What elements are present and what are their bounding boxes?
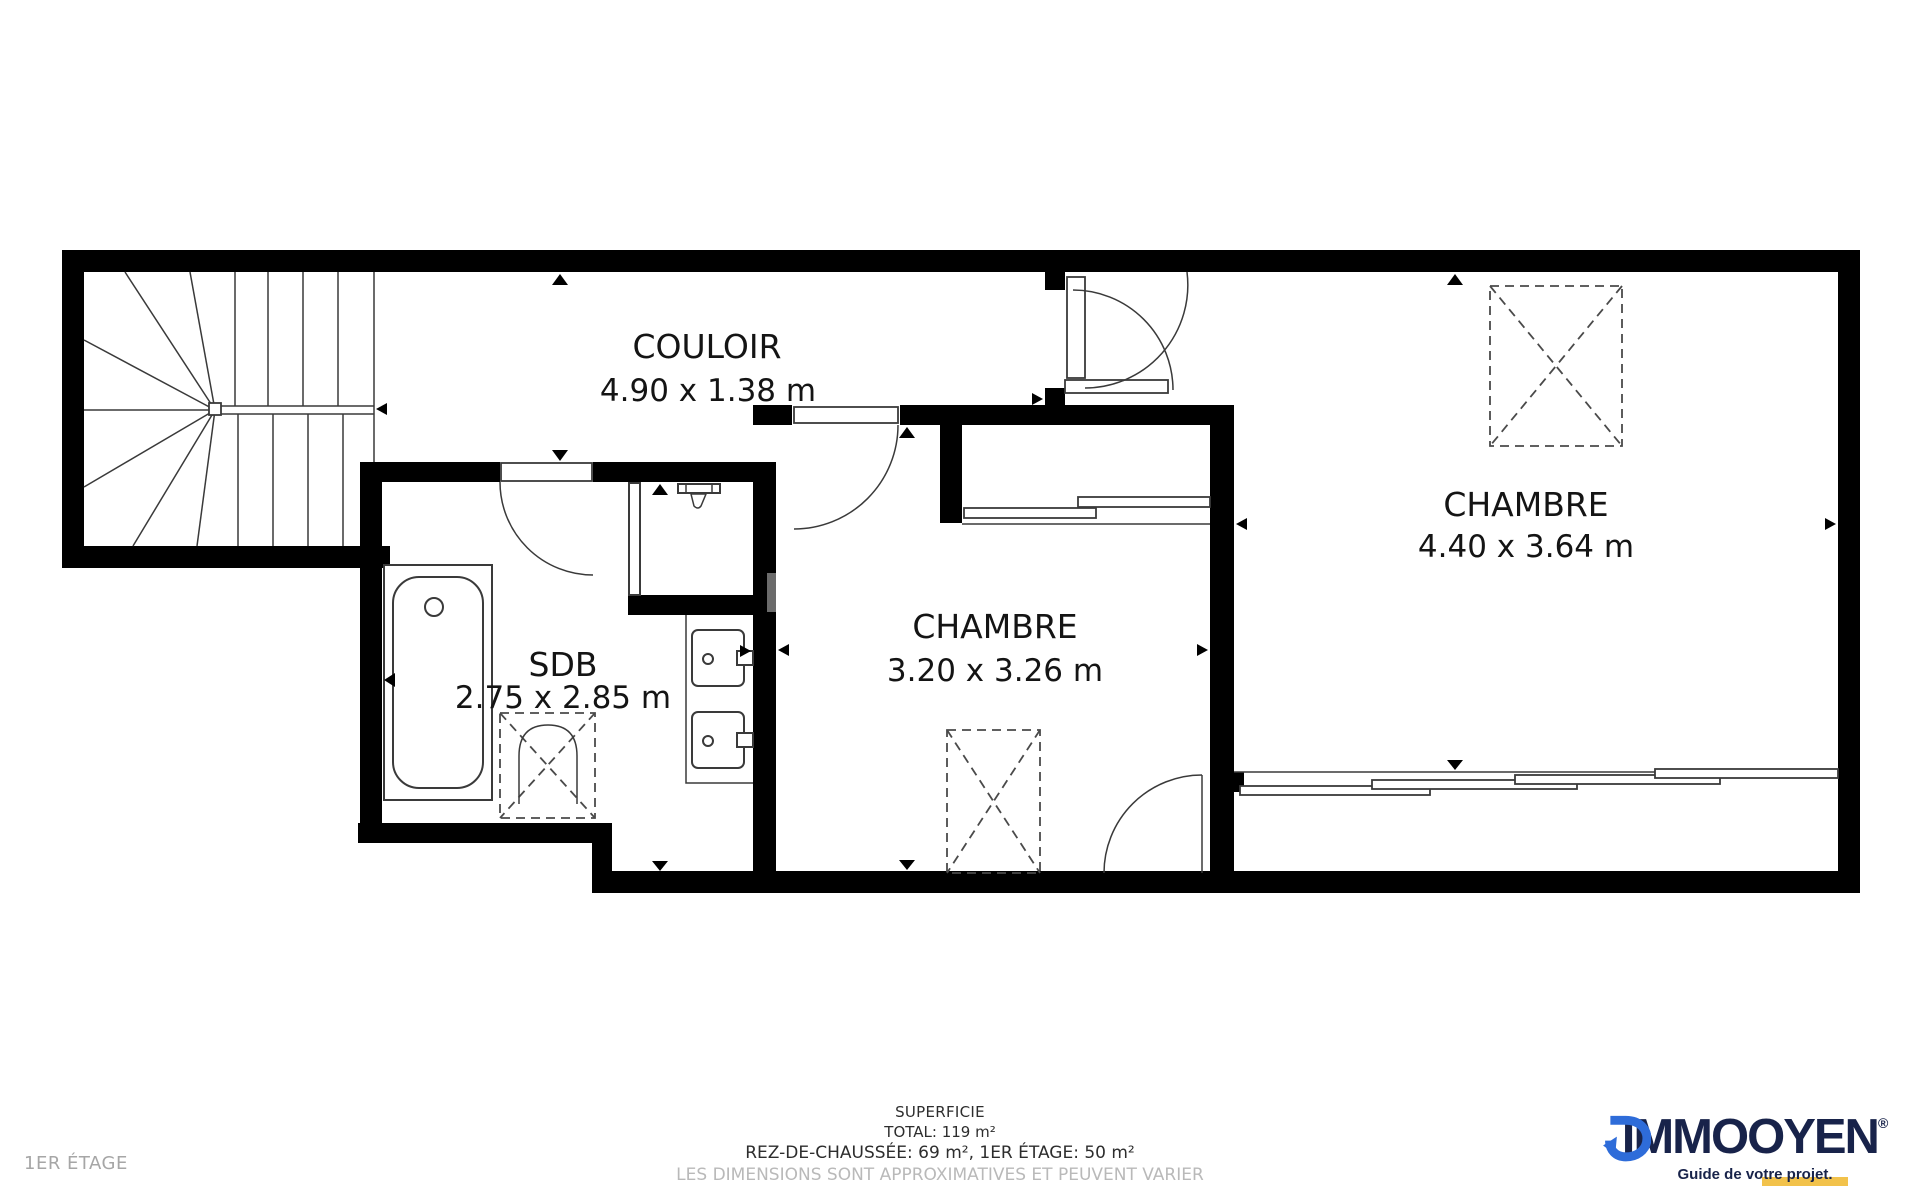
stairs-newel	[209, 403, 221, 415]
marker-up	[899, 427, 915, 438]
door-chambre-large	[1065, 272, 1188, 393]
wall-couloir-sdb-right	[593, 462, 753, 482]
registered-mark: ®	[1878, 1115, 1888, 1131]
marker-down	[552, 450, 568, 461]
marker-left	[1236, 518, 1247, 530]
sink-drain	[703, 654, 713, 664]
marker-right	[1032, 393, 1043, 405]
wall-vestibule-stub-top	[1045, 272, 1065, 290]
door-leaf-closed	[1067, 277, 1085, 378]
marker-down	[1447, 760, 1463, 770]
marker-right	[1825, 518, 1836, 530]
wardrobe-chambre-small	[947, 730, 1040, 873]
wall-bottom	[592, 871, 1860, 893]
room-dims-sdb: 2.75 x 2.85 m	[455, 680, 671, 716]
wall-vestibule-stub-bottom	[1045, 388, 1065, 405]
sink-faucet	[737, 733, 753, 747]
door-swing-arc	[1073, 290, 1173, 390]
wall-right	[1838, 250, 1860, 893]
wall-watermark-patch	[767, 573, 776, 612]
door-chambre-small	[794, 407, 898, 529]
logo-tagline: Guide de votre projet.	[1600, 1166, 1910, 1183]
bathtub-drain	[425, 598, 443, 616]
wall-couloir-sdb-left	[360, 462, 500, 482]
walls	[62, 250, 1860, 893]
superficie-breakdown: REZ-DE-CHAUSSÉE: 69 m², 1ER ÉTAGE: 50 m²	[0, 1143, 1880, 1163]
wall-step	[592, 823, 612, 893]
wall-chambre-top-right	[900, 405, 1234, 425]
window-panel	[1655, 769, 1838, 778]
superficie-total: TOTAL: 119 m²	[0, 1123, 1880, 1141]
wall-sink-nook	[628, 595, 753, 615]
marker-down	[899, 860, 915, 870]
small-washbasin	[678, 484, 720, 508]
wall-sdb-chambre	[753, 462, 776, 871]
floorplan-drawing: COULOIR 4.90 x 1.38 m CHAMBRE 3.20 x 3.2…	[0, 0, 1920, 1200]
wall-top	[62, 250, 1860, 272]
superficie-title: SUPERFICIE	[0, 1103, 1880, 1121]
door-leaf-open	[1065, 380, 1168, 393]
marker-left	[778, 644, 789, 656]
sliding-panel	[964, 508, 1096, 518]
room-label-chambre-large: CHAMBRE	[1443, 485, 1608, 524]
shower-tray	[519, 725, 577, 804]
room-label-sdb: SDB	[529, 645, 598, 684]
floor-label: 1ER ÉTAGE	[24, 1153, 128, 1174]
surface-summary: SUPERFICIE TOTAL: 119 m² REZ-DE-CHAUSSÉE…	[0, 1103, 1880, 1185]
vanity-counter	[686, 615, 753, 783]
room-dims-couloir: 4.90 x 1.38 m	[600, 373, 816, 409]
sink-drain	[703, 736, 713, 746]
room-dims-chambre-small: 3.20 x 3.26 m	[887, 653, 1103, 689]
marker-up	[652, 484, 668, 495]
bay-window	[1234, 769, 1838, 795]
door-leaf	[501, 463, 592, 481]
shower	[500, 713, 595, 818]
room-dims-chambre-large: 4.40 x 3.64 m	[1418, 529, 1634, 565]
wall-sdb-left	[360, 462, 382, 843]
room-label-couloir: COULOIR	[632, 327, 781, 366]
marker-up	[552, 274, 568, 285]
wardrobe-chambre-large	[1490, 286, 1622, 446]
marker-down	[652, 861, 668, 871]
wall-stairs-bottom	[62, 546, 390, 568]
wall-closet-stub	[940, 425, 962, 523]
immodoyen-logo: IMMO OYEN ® Guide de votre projet.	[1600, 1113, 1910, 1183]
wall-sdb-bottom	[358, 823, 612, 843]
door-chambre-small-right	[1104, 775, 1202, 873]
d-circular-arrow-logo-icon	[1599, 1113, 1651, 1165]
door-swing-arc	[1104, 775, 1202, 873]
sliding-panel	[1078, 497, 1210, 507]
floorplan-page: COULOIR 4.90 x 1.38 m CHAMBRE 3.20 x 3.2…	[0, 0, 1920, 1200]
door-swing-arc	[794, 425, 898, 529]
marker-right	[1197, 644, 1208, 656]
logo-text-oyen: OYEN	[1747, 1113, 1878, 1162]
wall-chambres-separating	[1210, 425, 1234, 873]
room-label-chambre-small: CHAMBRE	[912, 607, 1077, 646]
dimensions-disclaimer: LES DIMENSIONS SONT APPROXIMATIVES ET PE…	[0, 1165, 1880, 1185]
radiator	[629, 483, 640, 595]
staircase	[84, 272, 374, 546]
door-leaf	[794, 407, 898, 423]
door-sdb	[500, 463, 593, 575]
marker-left	[376, 403, 387, 415]
door-swing-arc	[1085, 272, 1188, 388]
closet-sliding-doors	[962, 497, 1210, 524]
wall-left	[62, 250, 84, 568]
marker-up	[1447, 274, 1463, 285]
door-swing-arc	[500, 482, 593, 575]
